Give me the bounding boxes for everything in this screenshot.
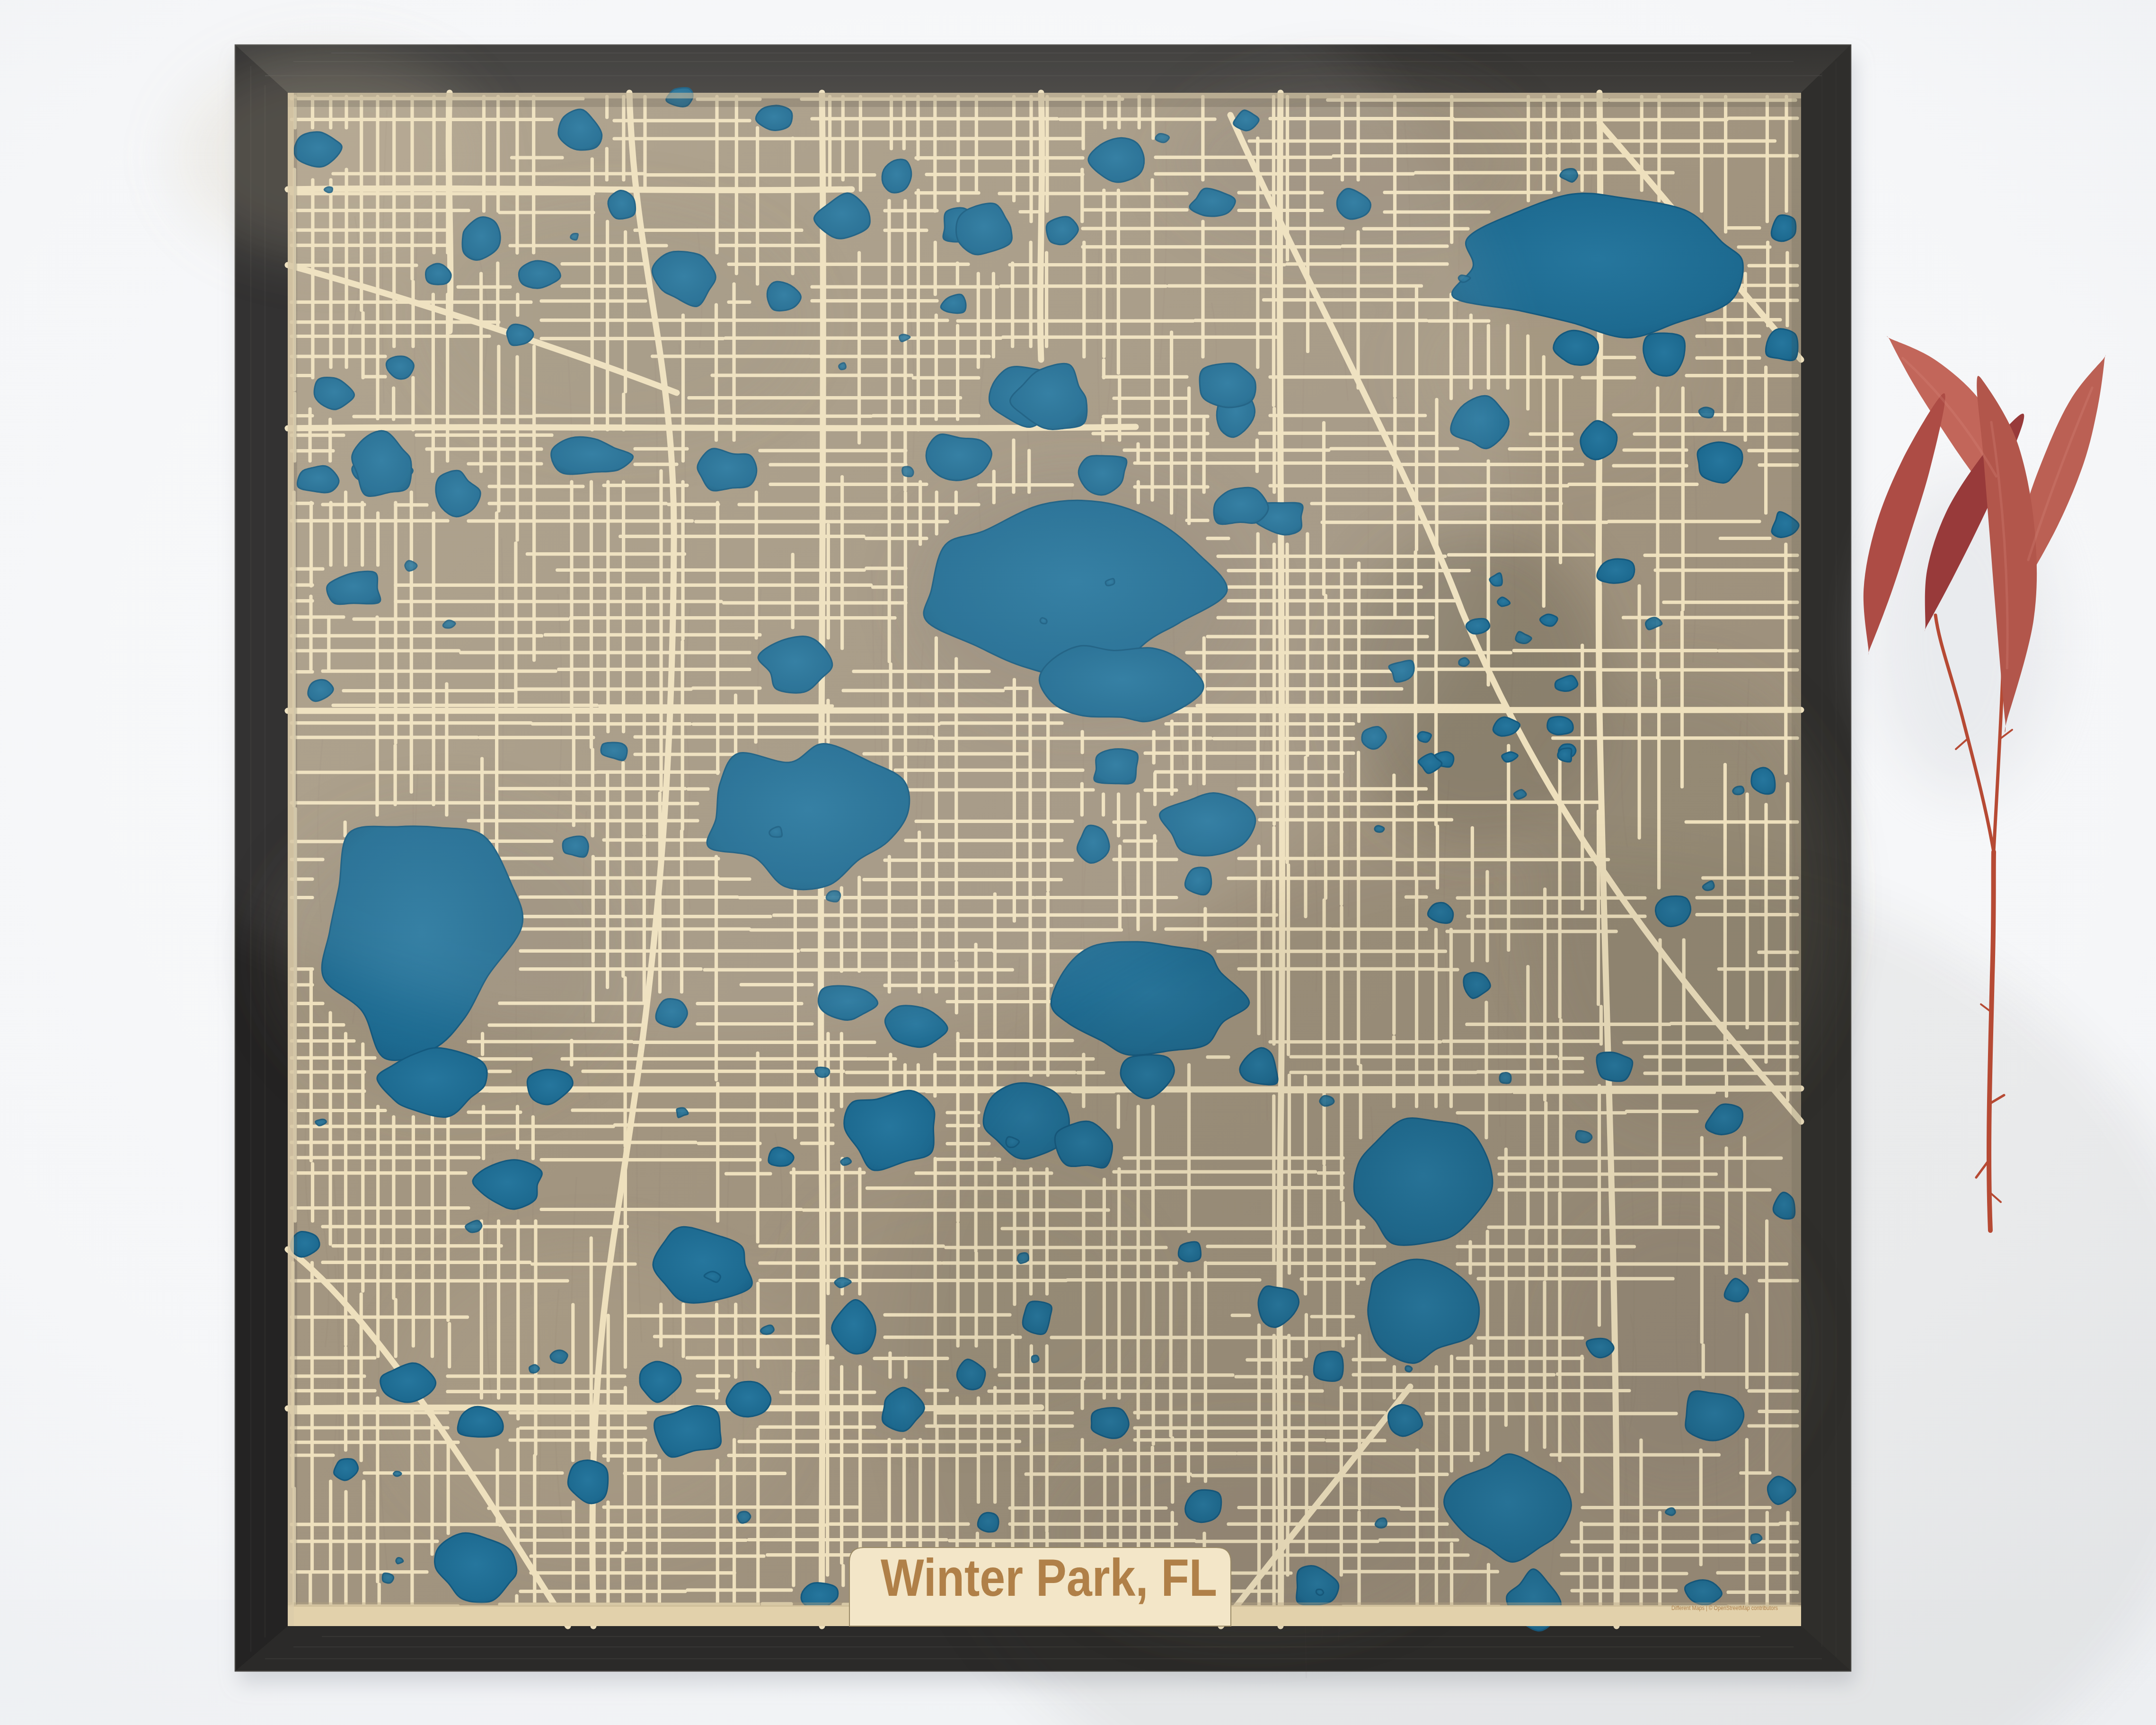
svg-text:Different Maps | © OpenStreetM: Different Maps | © OpenStreetMap contrib… bbox=[1671, 1604, 1778, 1611]
svg-text:Winter Park, FL: Winter Park, FL bbox=[881, 1548, 1217, 1607]
